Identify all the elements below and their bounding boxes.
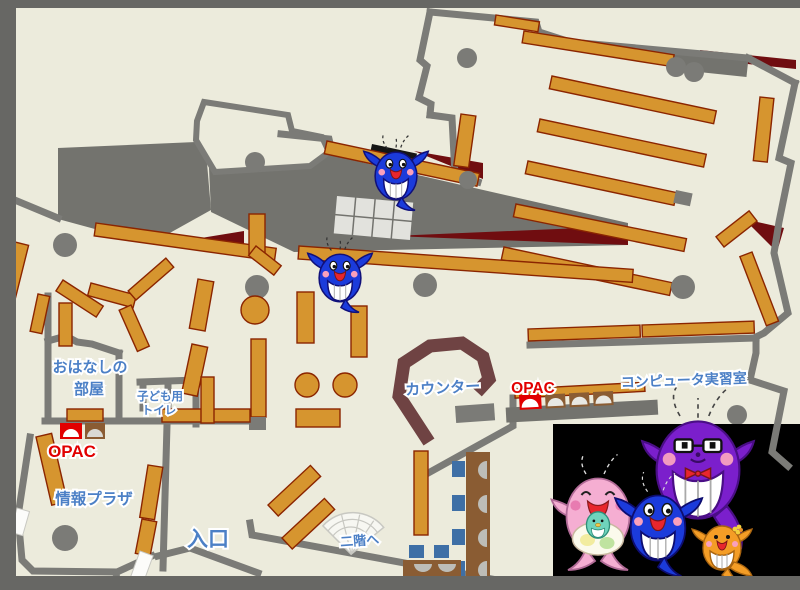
label-kids-toilet: 子ども用 — [137, 390, 183, 403]
label-to-second-floor: 二階へ — [340, 532, 380, 550]
chair — [452, 529, 465, 545]
chair — [452, 495, 465, 511]
label-storytelling-room: 部屋 — [74, 380, 104, 398]
label-info-plaza: 情報プラザ — [55, 489, 133, 508]
label-entrance: 入口 — [187, 528, 229, 551]
label-storytelling-room: おはなしの — [52, 359, 127, 376]
label-opac-right: OPAC — [511, 380, 555, 397]
shelf-end-cap — [249, 417, 266, 430]
chair — [452, 461, 465, 477]
chair — [434, 545, 449, 558]
chair — [409, 545, 424, 558]
library-floor-map: おはなしの 部屋 子ども用 トイレ OPAC 情報プラザ 入口 カウンター OP… — [0, 0, 800, 590]
label-kids-toilet: トイレ — [142, 404, 177, 417]
counter-return-desk — [455, 403, 495, 423]
label-opac-left: OPAC — [48, 442, 96, 461]
baby-whale-mascot — [586, 512, 609, 538]
